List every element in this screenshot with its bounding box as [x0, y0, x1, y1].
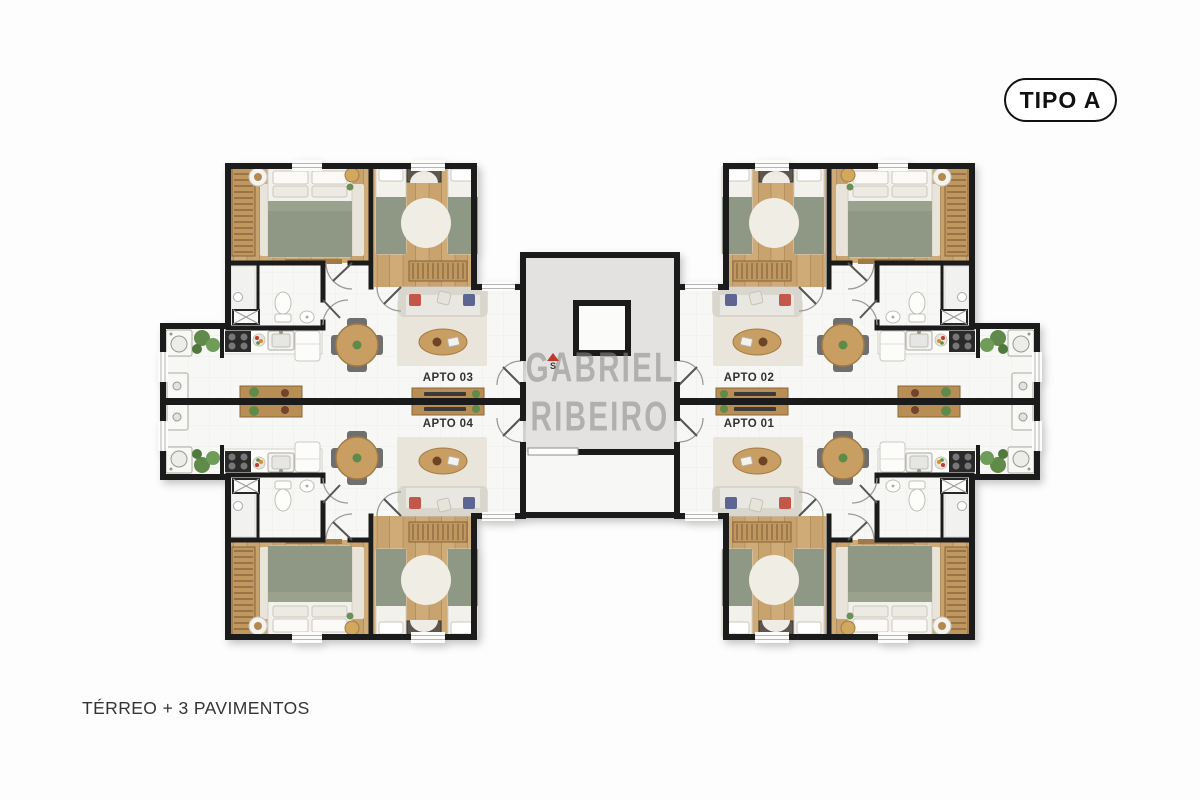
floors-caption: TÉRREO + 3 PAVIMENTOS	[82, 698, 310, 719]
floor-plan-page: GABRIEL RIBEIRO S APTO 03 APTO 04 APTO 0…	[0, 0, 1200, 800]
stair-core	[523, 255, 677, 515]
compass-marker: S	[546, 353, 560, 371]
type-badge: TIPO A	[1004, 78, 1117, 122]
elevator-shaft	[576, 303, 628, 353]
apartment-unit-top-right	[677, 160, 1042, 402]
apto-04-label: APTO 04	[423, 418, 474, 430]
apartment-unit-bottom-right	[677, 401, 1042, 643]
apartment-unit-top-left	[158, 160, 523, 402]
apartment-unit-bottom-left	[158, 401, 523, 643]
compass-needle-icon	[547, 353, 559, 361]
apto-01-label: APTO 01	[724, 418, 775, 430]
apto-03-label: APTO 03	[423, 372, 474, 384]
stair-door-leaf	[528, 448, 578, 455]
apto-02-label: APTO 02	[724, 372, 775, 384]
compass-label: S	[546, 361, 560, 371]
